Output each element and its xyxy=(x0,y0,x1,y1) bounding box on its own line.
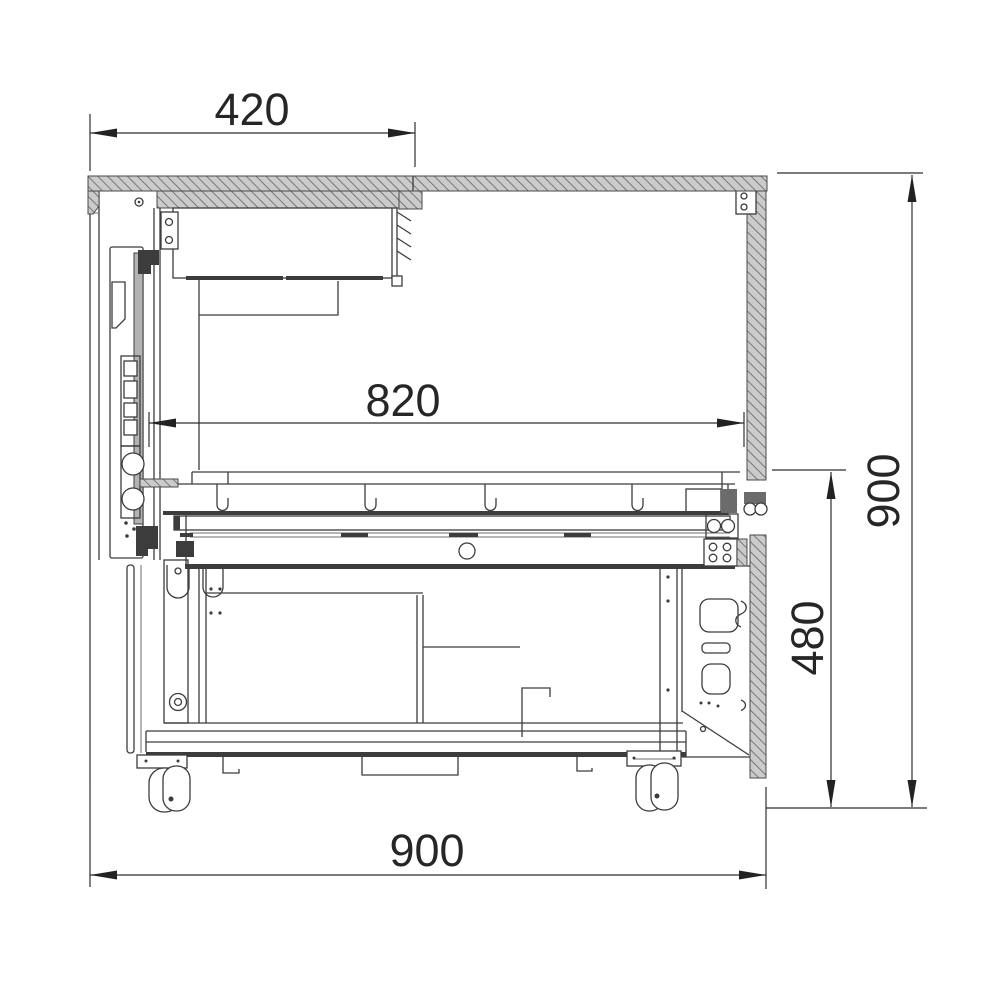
dim-label-inner-width: 820 xyxy=(365,375,440,426)
hinge-knuckle xyxy=(122,488,144,510)
rail-hook xyxy=(217,484,228,511)
lower-cabinet xyxy=(127,560,677,753)
hinge-knuckle xyxy=(122,453,144,475)
right-wall xyxy=(736,189,766,778)
left-wall xyxy=(90,191,99,788)
technical-drawing-canvas: 420 820 900 900 480 xyxy=(0,0,1000,1000)
dim-label-overall-width: 900 xyxy=(389,825,464,876)
base-bracket xyxy=(362,757,458,775)
four-hole-bracket xyxy=(704,539,737,566)
worktop-front-edge xyxy=(88,191,99,214)
rail-hook xyxy=(632,484,643,511)
base-frame xyxy=(146,723,686,775)
dimension-inner-width: 820 xyxy=(149,375,744,447)
vent-hole xyxy=(700,599,738,632)
support-hook xyxy=(522,688,550,737)
caster-left xyxy=(137,755,190,812)
dim-label-top-depth: 420 xyxy=(214,84,289,135)
rail-hook xyxy=(365,484,376,511)
vent-hole xyxy=(702,664,730,694)
shelf-hole xyxy=(459,543,475,559)
rail-hook xyxy=(485,484,496,511)
machine-panel xyxy=(682,566,750,757)
dimension-overall-height: 900 xyxy=(766,173,927,808)
door-top-hinge xyxy=(138,250,159,274)
left-door xyxy=(110,208,160,560)
dimension-base-height: 480 xyxy=(772,470,846,807)
door-handle-recess xyxy=(112,282,125,328)
base-foot xyxy=(223,757,239,773)
panel-clip xyxy=(741,700,746,711)
counter-rails xyxy=(140,472,767,569)
base-foot xyxy=(577,757,592,771)
cabinet-section-drawing: 420 820 900 900 480 xyxy=(0,0,1000,1000)
latch-roller xyxy=(722,520,735,533)
dimension-top-depth: 420 xyxy=(90,84,415,171)
door-bottom-hinge xyxy=(136,526,158,556)
vent-slot xyxy=(702,643,730,653)
evaporator-box xyxy=(135,198,411,470)
caster-right xyxy=(627,751,681,811)
caster-wheel xyxy=(651,763,678,810)
dim-label-base-height: 480 xyxy=(782,600,833,675)
dim-label-overall-height: 900 xyxy=(858,453,909,528)
adjuster-screw xyxy=(170,694,187,711)
latch-roller xyxy=(708,520,721,533)
caster-wheel xyxy=(163,766,190,811)
kick-strip xyxy=(127,565,134,753)
